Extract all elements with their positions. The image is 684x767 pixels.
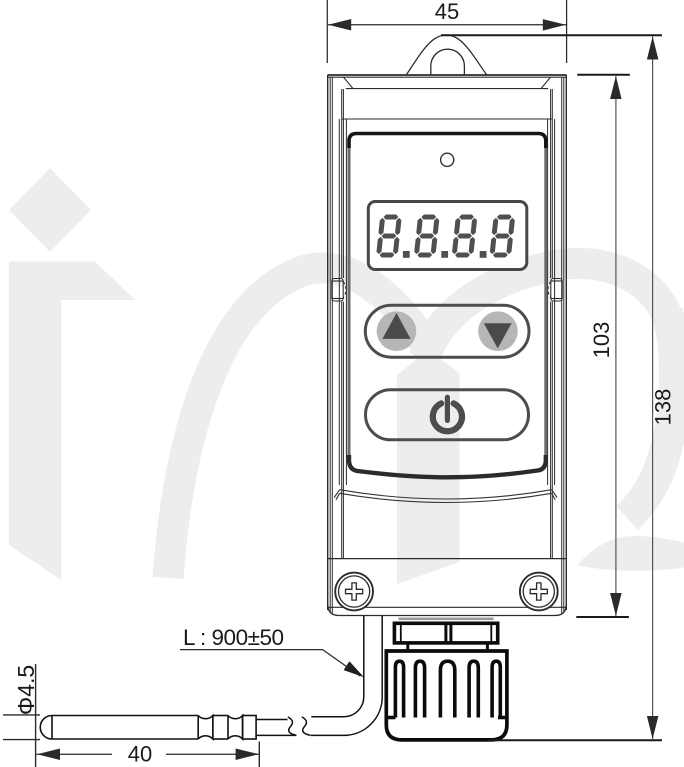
- svg-text:L : 900±50: L : 900±50: [183, 625, 284, 650]
- svg-text:Φ4.5: Φ4.5: [13, 665, 39, 715]
- svg-text:45: 45: [435, 0, 459, 24]
- svg-text:40: 40: [128, 741, 152, 766]
- svg-text:138: 138: [651, 389, 676, 426]
- svg-text:103: 103: [589, 322, 614, 359]
